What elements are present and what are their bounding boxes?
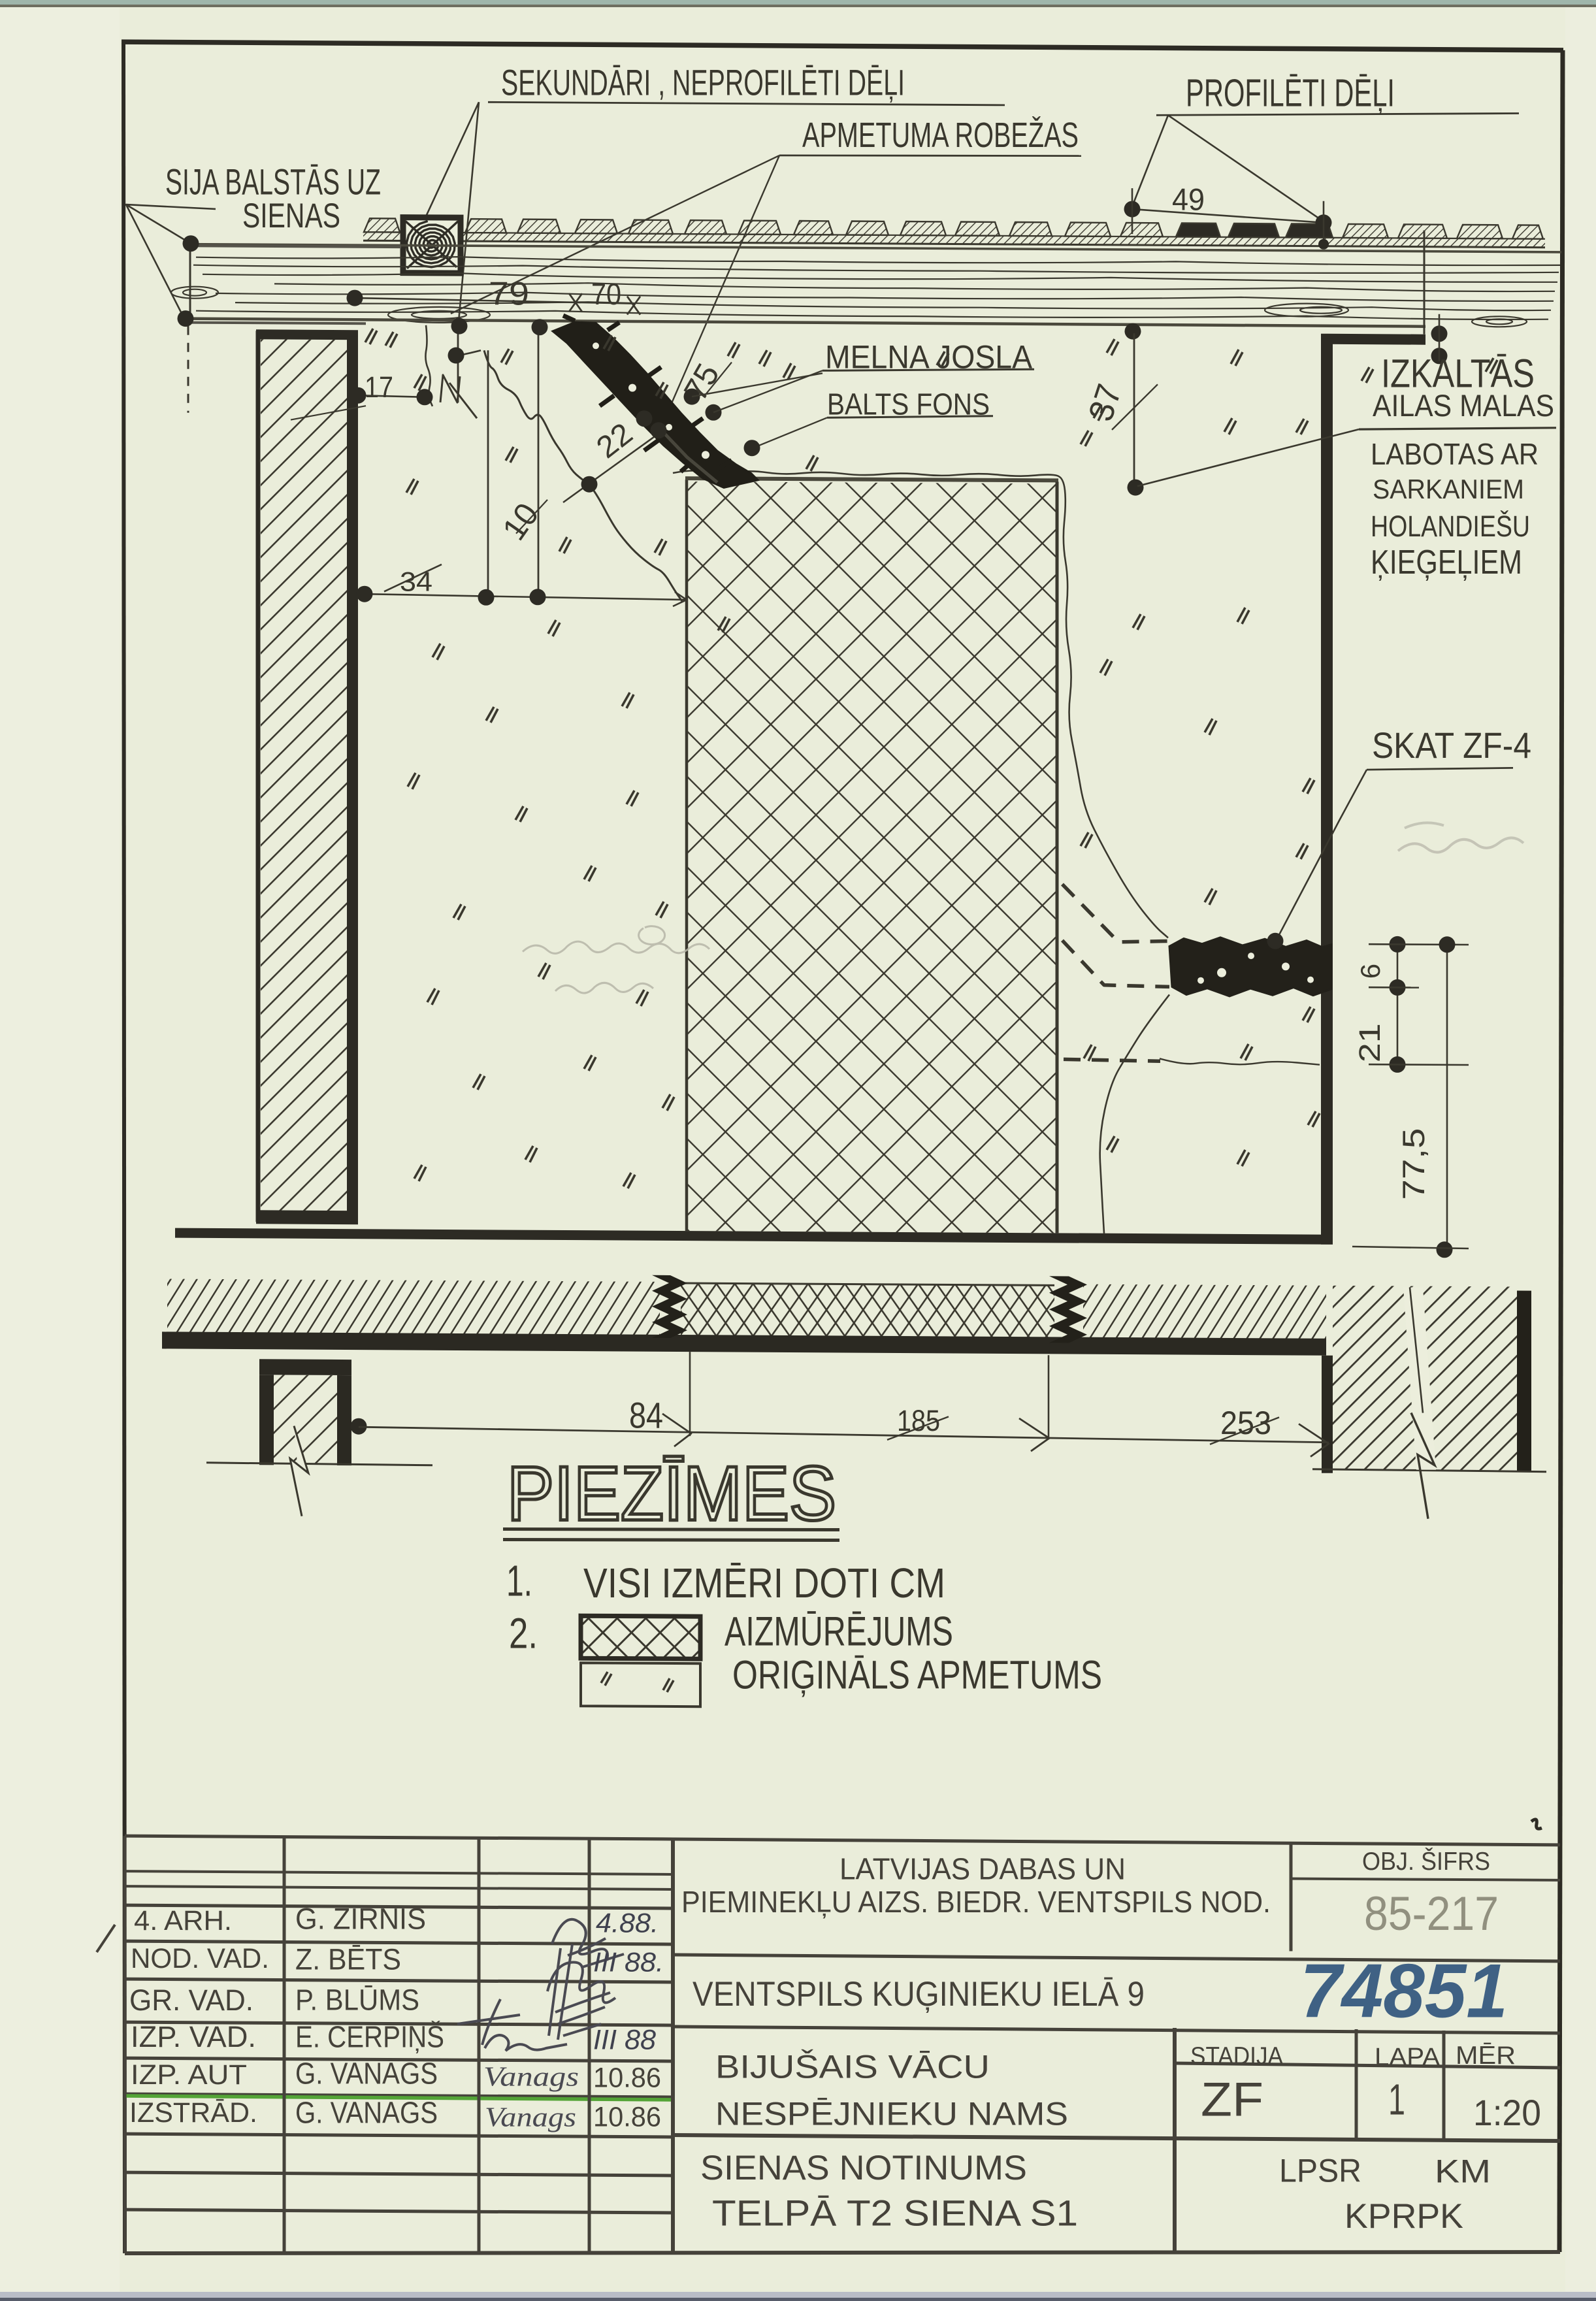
svg-text:49: 49 [1172,182,1205,216]
svg-text:1.: 1. [506,1557,532,1606]
svg-text:TELPĀ T2 SIENA S1: TELPĀ T2 SIENA S1 [712,2192,1078,2233]
svg-text:77,5: 77,5 [1396,1128,1431,1200]
svg-text:LAPA: LAPA [1375,2044,1441,2071]
svg-text:VENTSPILS KUĢINIEKU IELĀ 9: VENTSPILS KUĢINIEKU IELĀ 9 [692,1975,1145,2014]
svg-text:STADIJA: STADIJA [1190,2043,1284,2070]
svg-text:10.86: 10.86 [593,2062,661,2093]
svg-text:PROFILĒTI DĒĻI: PROFILĒTI DĒĻI [1186,72,1395,115]
svg-text:NESPĒJNIEKU NAMS: NESPĒJNIEKU NAMS [715,2095,1068,2132]
svg-text:1:20: 1:20 [1473,2092,1541,2133]
svg-text:74851: 74851 [1300,1948,1508,2034]
svg-text:APMETUMA ROBEŽAS: APMETUMA ROBEŽAS [802,116,1079,155]
svg-text:HOLANDIEŠU: HOLANDIEŠU [1371,510,1530,543]
svg-text:4.88.: 4.88. [596,1907,659,1938]
svg-text:AILAS MALAS: AILAS MALAS [1373,388,1554,423]
svg-text:70: 70 [591,277,621,311]
svg-text:PIEZĪMES: PIEZĪMES [507,1451,836,1537]
svg-text:III 88.: III 88. [593,1946,664,1977]
svg-text:BIJUŠAIS VĀCU: BIJUŠAIS VĀCU [715,2048,990,2085]
svg-text:MĒR: MĒR [1456,2042,1516,2070]
svg-text:PIEMINEKĻU AIZS. BIEDR. VENTSP: PIEMINEKĻU AIZS. BIEDR. VENTSPILS NOD. [681,1885,1271,1919]
svg-text:Vanags: Vanags [483,2062,579,2092]
svg-text:IZP. AUT: IZP. AUT [131,2059,247,2091]
svg-text:IZSTRĀD.: IZSTRĀD. [129,2097,257,2129]
svg-text:84: 84 [629,1395,663,1436]
svg-text:Vanags: Vanags [485,2102,576,2132]
svg-text:VISI IZMĒRI DOTI CM: VISI IZMĒRI DOTI CM [583,1559,945,1607]
svg-text:LATVIJAS DABAS UN: LATVIJAS DABAS UN [839,1852,1126,1886]
svg-text:6: 6 [1355,964,1386,979]
svg-text:G. ZIRNIS: G. ZIRNIS [295,1902,426,1936]
svg-text:85-217: 85-217 [1364,1887,1499,1940]
svg-text:SIJA BALSTĀS UZ: SIJA BALSTĀS UZ [165,161,381,203]
svg-text:OBJ. ŠIFRS: OBJ. ŠIFRS [1362,1847,1490,1876]
svg-text:2.: 2. [509,1609,538,1657]
svg-text:III 88: III 88 [593,2024,656,2055]
svg-text:KM: KM [1435,2153,1491,2190]
svg-text:SIENAS: SIENAS [242,197,340,235]
svg-text:G. VANAGS: G. VANAGS [295,2057,438,2091]
svg-text:10.86: 10.86 [593,2101,661,2132]
svg-text:ZF: ZF [1201,2074,1263,2127]
svg-text:LABOTAS AR: LABOTAS AR [1371,437,1539,471]
svg-text:KPRPK: KPRPK [1344,2197,1463,2236]
svg-text:79: 79 [489,275,529,312]
svg-text:NOD. VAD.: NOD. VAD. [131,1943,269,1974]
svg-text:P. BLŪMS: P. BLŪMS [295,1983,419,2017]
svg-text:ĶIEĢEĻIEM: ĶIEĢEĻIEM [1371,544,1522,581]
svg-text:SIENAS NOTINUMS: SIENAS NOTINUMS [700,2149,1027,2187]
svg-text:G. VANAGS: G. VANAGS [295,2096,438,2130]
svg-text:LPSR: LPSR [1279,2152,1361,2189]
svg-text:SARKANIEM: SARKANIEM [1373,474,1524,504]
svg-text:E. CĒRPIŅŠ: E. CĒRPIŅŠ [295,2020,444,2054]
svg-text:SEKUNDĀRI , NEPROFILĒTI DĒĻI: SEKUNDĀRI , NEPROFILĒTI DĒĻI [501,61,905,103]
svg-text:4. ARH.: 4. ARH. [134,1905,232,1936]
svg-text:Z. BĒTS: Z. BĒTS [295,1943,401,1976]
svg-text:GR. VAD.: GR. VAD. [129,1983,253,2017]
svg-text:185: 185 [897,1404,940,1437]
svg-text:AIZMŪRĒJUMS: AIZMŪRĒJUMS [725,1608,953,1654]
svg-text:IZP. VAD.: IZP. VAD. [131,2020,256,2053]
svg-text:17: 17 [365,370,393,404]
svg-text:ORIĢINĀLS APMETUMS: ORIĢINĀLS APMETUMS [732,1653,1102,1697]
svg-text:21: 21 [1353,1023,1386,1062]
svg-text:SKAT ZF-4: SKAT ZF-4 [1372,725,1531,766]
svg-text:1: 1 [1388,2075,1405,2124]
